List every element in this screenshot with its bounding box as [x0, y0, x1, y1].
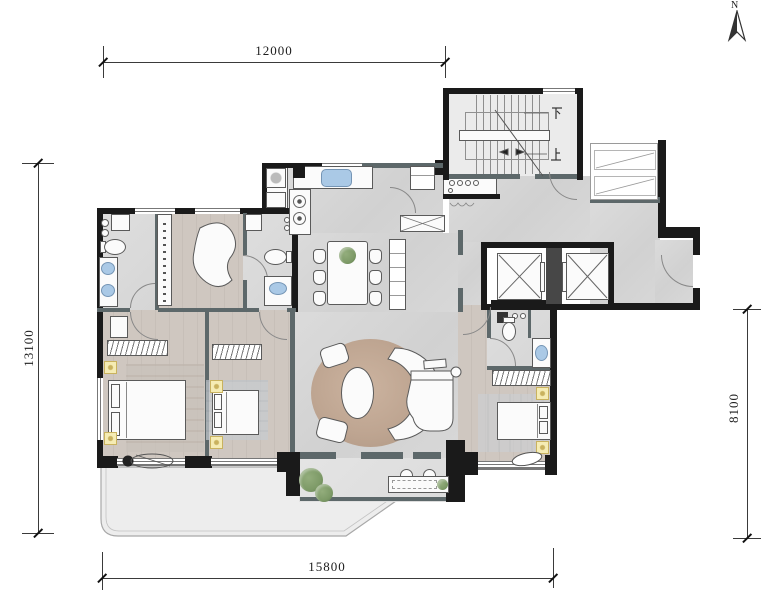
- dimension-value-top: 12000: [255, 43, 293, 59]
- dimension-value-left: 13100: [21, 329, 37, 367]
- dimension-extension: [102, 552, 103, 590]
- coat-hooks: [450, 203, 474, 206]
- plan-linework: [0, 0, 770, 592]
- north-arrow-icon: [722, 10, 752, 44]
- dimension-value-right: 8100: [726, 393, 742, 423]
- stair-direction: [495, 110, 548, 176]
- desk-icon: [193, 223, 235, 287]
- dimension-value-bottom: 15800: [308, 559, 346, 575]
- dimension-line: [747, 309, 748, 538]
- floor-plan: N 12000 13100 8100 15800: [0, 0, 770, 592]
- cabinet-cross: [401, 216, 444, 231]
- ac-louver-lines: [596, 153, 654, 194]
- chaise-icon: [511, 450, 543, 468]
- stair-down-label: [551, 106, 563, 120]
- dimension-extension: [553, 548, 554, 588]
- chaise-icon: [123, 454, 174, 468]
- dimension-line: [38, 163, 39, 533]
- dimension-line: [103, 62, 445, 63]
- stair-up-label: [550, 147, 562, 161]
- dimension-line: [102, 578, 553, 579]
- elevator-icon: [499, 255, 607, 298]
